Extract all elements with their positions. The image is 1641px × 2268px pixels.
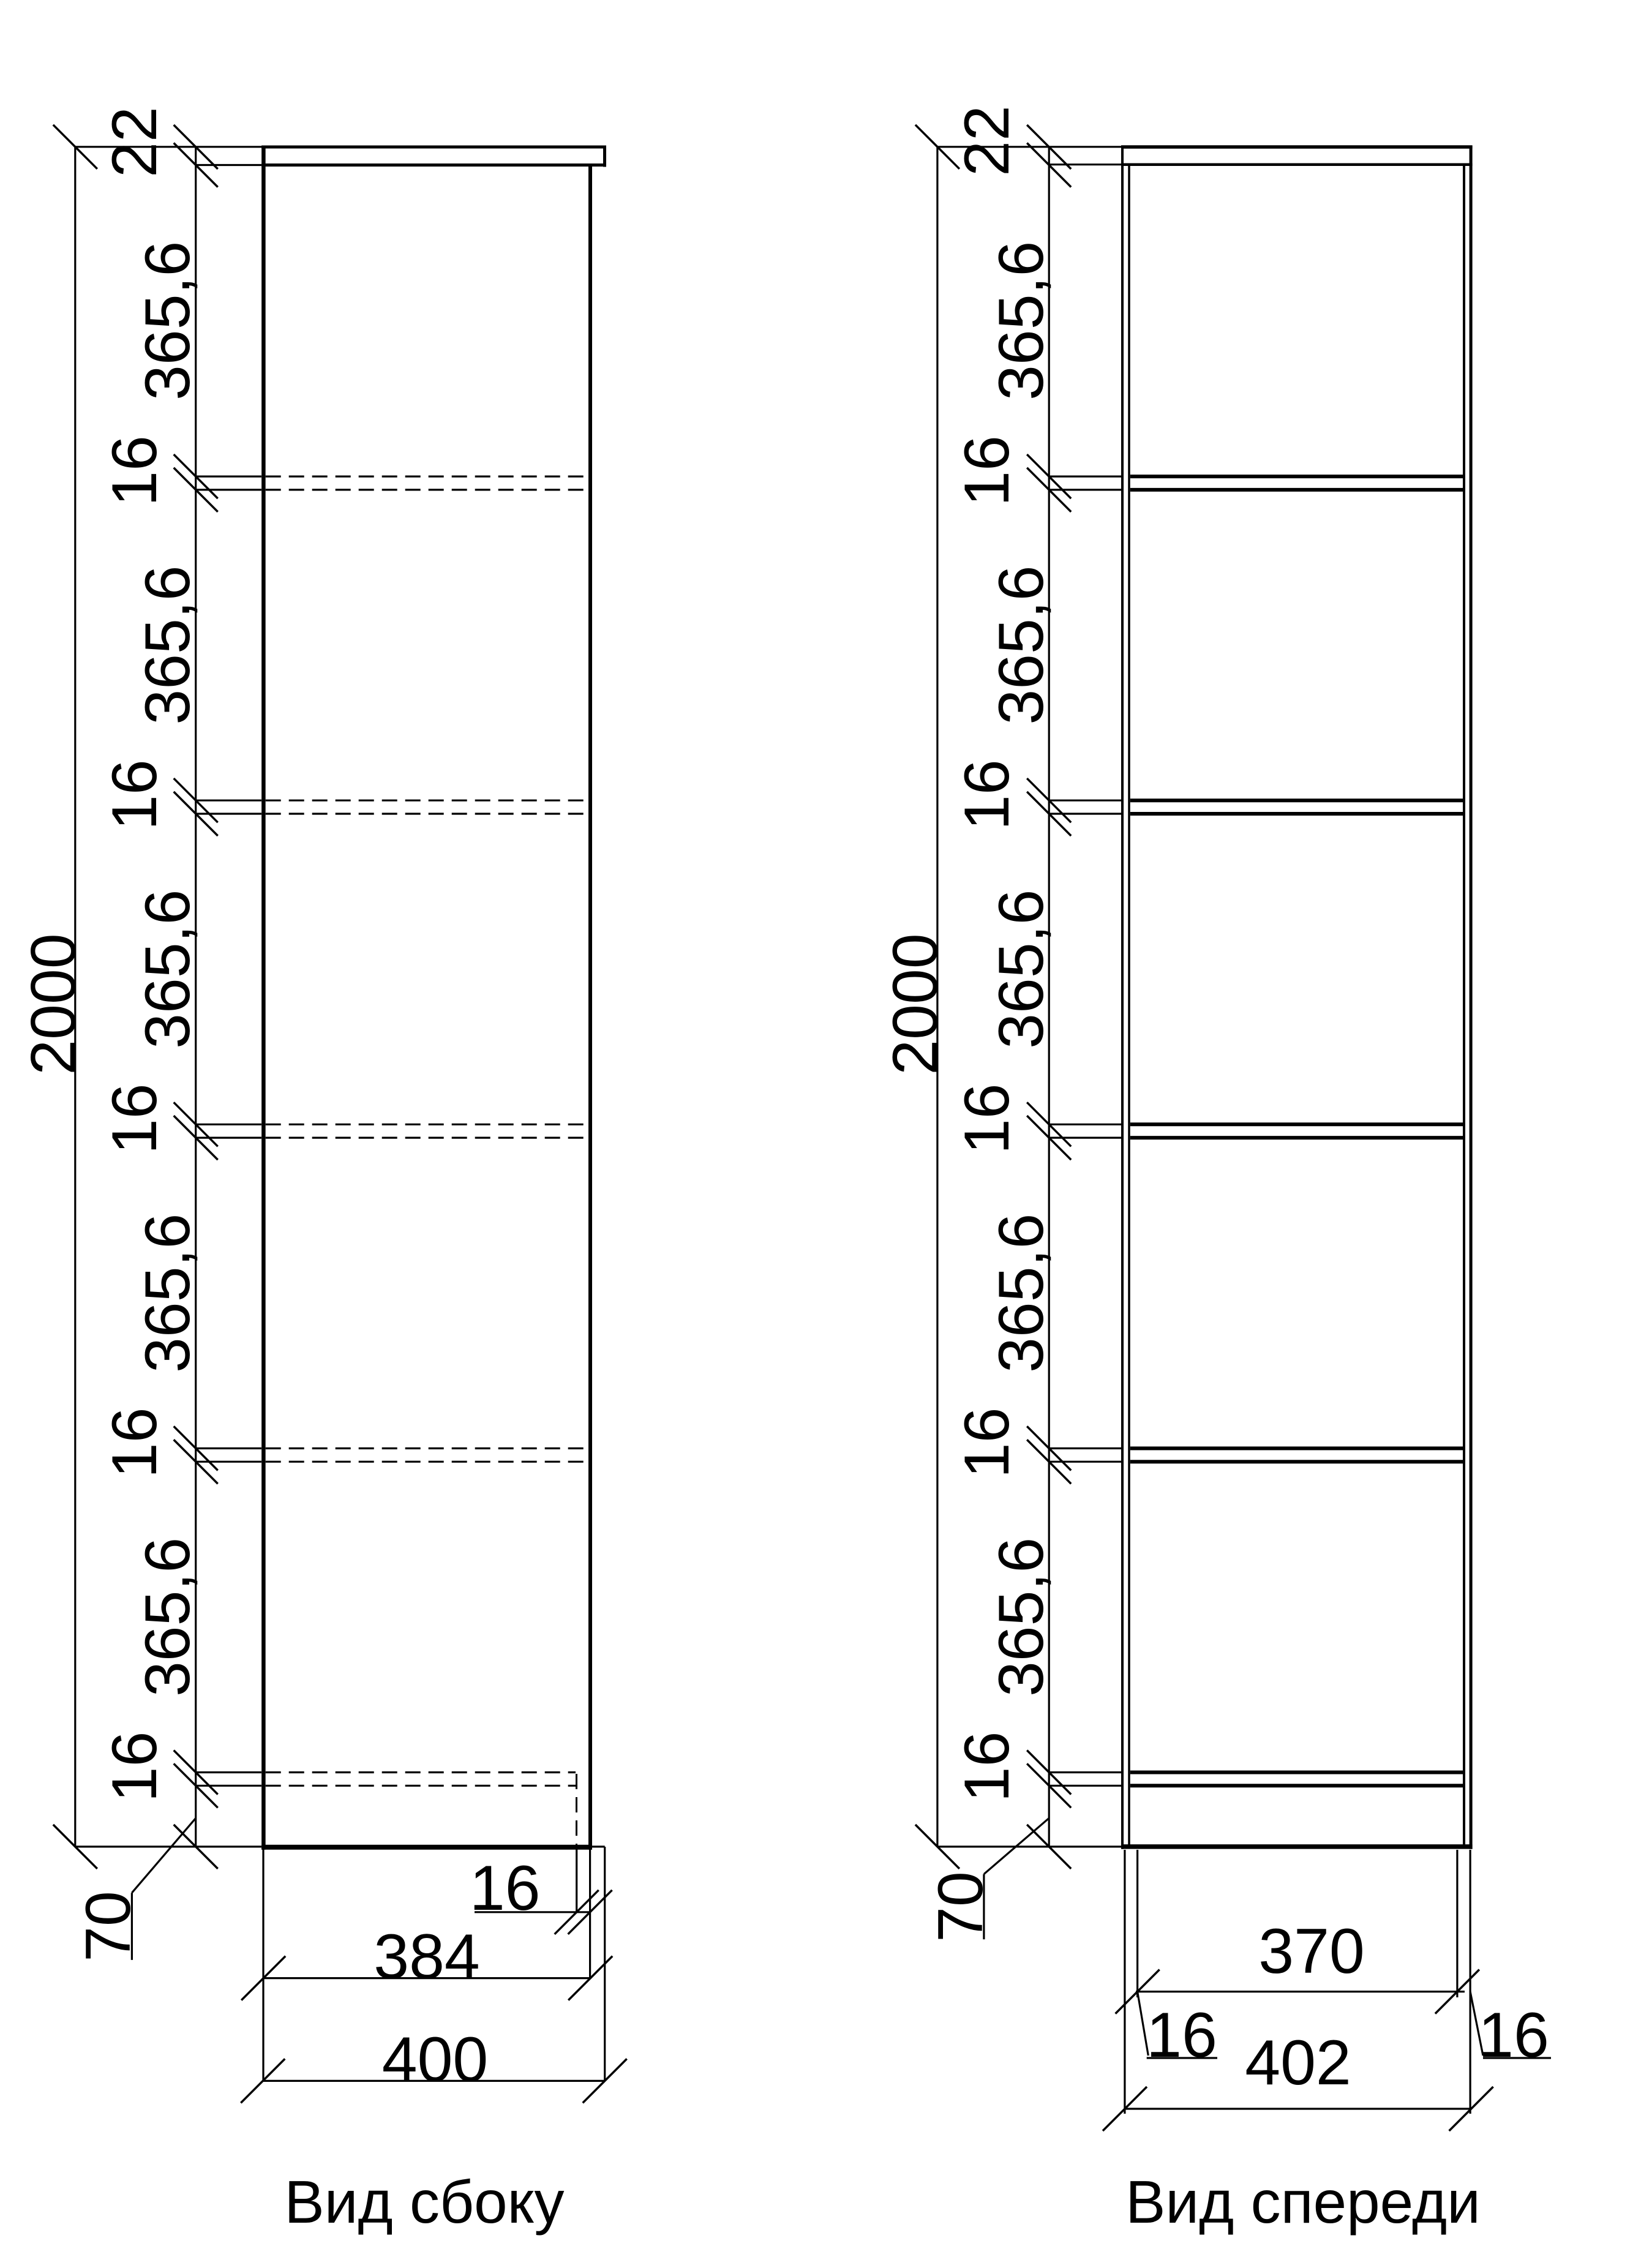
- svg-text:16: 16: [470, 1853, 541, 1924]
- svg-text:Вид сбоку: Вид сбоку: [284, 2168, 564, 2236]
- svg-text:2000: 2000: [18, 933, 89, 1075]
- svg-text:402: 402: [1245, 2027, 1351, 2098]
- svg-text:70: 70: [925, 1871, 996, 1942]
- svg-text:384: 384: [374, 1921, 480, 1992]
- svg-text:22: 22: [99, 107, 170, 178]
- svg-text:365,6: 365,6: [132, 565, 203, 724]
- svg-text:16: 16: [99, 759, 170, 830]
- svg-text:365,6: 365,6: [986, 1538, 1057, 1697]
- svg-text:16: 16: [1146, 2000, 1217, 2071]
- svg-text:365,6: 365,6: [132, 890, 203, 1049]
- svg-text:16: 16: [952, 759, 1023, 830]
- svg-text:16: 16: [952, 1732, 1023, 1803]
- svg-text:400: 400: [382, 2024, 489, 2095]
- svg-text:16: 16: [99, 1407, 170, 1478]
- svg-text:16: 16: [99, 1732, 170, 1803]
- svg-text:16: 16: [952, 435, 1023, 506]
- svg-text:16: 16: [1478, 2000, 1549, 2071]
- svg-text:16: 16: [99, 435, 170, 506]
- svg-text:16: 16: [952, 1407, 1023, 1478]
- svg-text:16: 16: [99, 1083, 170, 1154]
- svg-text:22: 22: [952, 105, 1023, 176]
- svg-text:70: 70: [73, 1891, 144, 1962]
- svg-text:365,6: 365,6: [986, 890, 1057, 1049]
- svg-text:365,6: 365,6: [132, 1538, 203, 1697]
- svg-text:Вид спереди: Вид спереди: [1125, 2168, 1481, 2236]
- svg-text:365,6: 365,6: [986, 241, 1057, 400]
- svg-text:370: 370: [1258, 1916, 1365, 1987]
- svg-text:365,6: 365,6: [132, 241, 203, 400]
- svg-text:2000: 2000: [880, 933, 951, 1075]
- svg-text:365,6: 365,6: [986, 1214, 1057, 1373]
- svg-text:365,6: 365,6: [986, 565, 1057, 724]
- svg-text:365,6: 365,6: [132, 1214, 203, 1373]
- svg-text:16: 16: [952, 1083, 1023, 1154]
